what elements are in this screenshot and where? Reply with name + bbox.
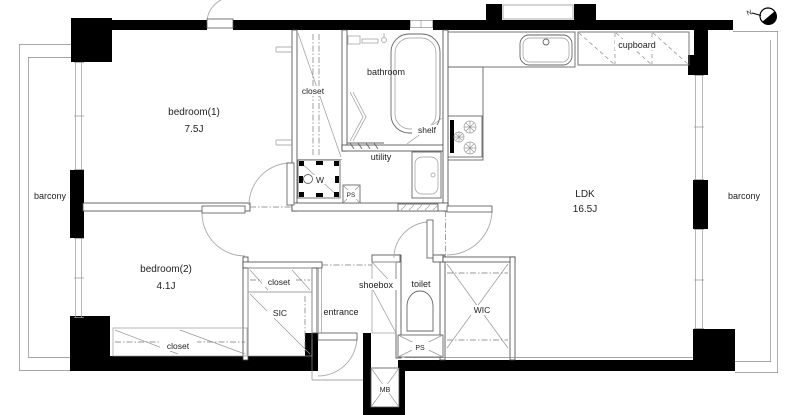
washbasin [412, 152, 441, 198]
door-bedroom1 [249, 163, 294, 207]
sic-interior [248, 292, 312, 356]
window-bedroom1-west [74, 62, 84, 170]
bath-counter [348, 33, 387, 44]
bedroom1-label: bedroom(1) [168, 107, 220, 118]
window-ldk-east-lower [694, 229, 704, 329]
door-north-service [207, 0, 233, 28]
closet-top-label: closet [302, 86, 325, 96]
stove [448, 116, 482, 157]
closet-mid-label: closet [268, 277, 291, 287]
shelf-label: shelf [418, 125, 437, 135]
balcony-left-outline [20, 44, 73, 371]
ps-toilet-label: PS [415, 345, 425, 352]
floor-plan-svg: bedroom(1) 7.5J bedroom(2) 4.1J LDK 16.5… [0, 0, 788, 415]
door-ldk [446, 206, 493, 257]
floor-plan: bedroom(1) 7.5J bedroom(2) 4.1J LDK 16.5… [0, 0, 788, 415]
entrance-label: entrance [323, 307, 358, 317]
compass-north-icon [752, 8, 777, 25]
shoebox-cabinet [372, 262, 396, 333]
door-bedroom2 [202, 206, 245, 256]
kitchen-counter [448, 32, 575, 160]
closet-bottom-label: closet [167, 341, 190, 351]
door-bathroom-folding [347, 92, 384, 149]
balcony-left-label: barcony [34, 191, 67, 201]
washer-label: W [316, 175, 324, 185]
balcony-right-label: barcony [728, 191, 761, 201]
sic-label: SIC [273, 308, 287, 318]
bedroom1-size: 7.5J [185, 124, 204, 135]
balcony-right-outline [733, 31, 778, 373]
toilet-label: toilet [411, 279, 431, 289]
closet-top-interior [297, 33, 342, 160]
ldk-size: 16.5J [573, 204, 597, 215]
window-ldk-east-upper [694, 75, 704, 180]
mb-label: MB [380, 387, 391, 394]
kitchen-sink [520, 35, 572, 65]
bathtub [391, 34, 440, 133]
window-bedroom2-west [74, 238, 84, 318]
door-entrance [312, 333, 363, 380]
door-utility-sliding [398, 204, 438, 211]
door-toilet [394, 220, 433, 258]
utility-label: utility [371, 152, 392, 162]
ldk-label: LDK [575, 189, 595, 200]
cupboard-label: cupboard [618, 40, 656, 50]
compass-north-label: N [746, 9, 753, 17]
window-bathroom-north [410, 20, 433, 28]
bathroom-label: bathroom [367, 67, 405, 77]
top-duct-recess [503, 5, 573, 19]
wall-hook-marks [276, 47, 292, 145]
bedroom2-label: bedroom(2) [140, 264, 192, 275]
wic-label: WIC [474, 305, 491, 315]
ps-utility-label: PS [347, 192, 356, 199]
toilet-bowl [407, 291, 433, 331]
bedroom2-size: 4.1J [157, 281, 176, 292]
shoebox-label: shoebox [359, 280, 394, 290]
entrance-step-line [319, 268, 322, 333]
